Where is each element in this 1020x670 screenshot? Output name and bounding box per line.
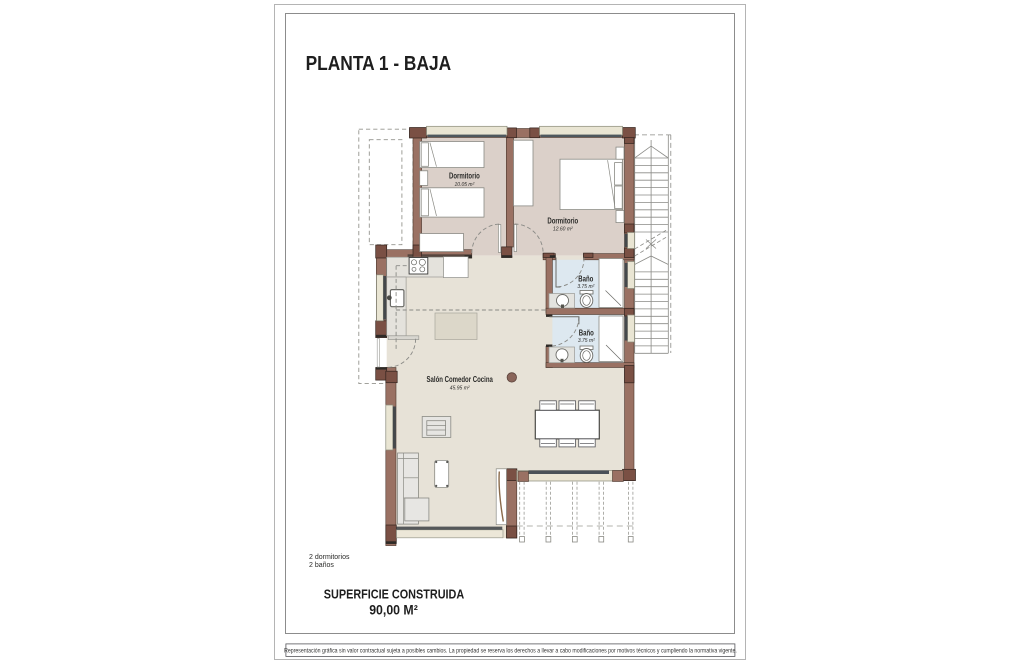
svg-text:90,00 M²: 90,00 M² <box>369 602 418 618</box>
svg-text:12.60 m²: 12.60 m² <box>553 226 573 232</box>
svg-text:SUPERFICIE CONSTRUIDA: SUPERFICIE CONSTRUIDA <box>324 588 465 602</box>
svg-text:Dormitorio: Dormitorio <box>547 215 578 225</box>
svg-text:Baño: Baño <box>578 273 594 283</box>
svg-text:2 baños: 2 baños <box>309 562 334 569</box>
svg-text:Salón Comedor Cocina: Salón Comedor Cocina <box>427 374 494 384</box>
svg-text:3.75 m²: 3.75 m² <box>577 284 594 290</box>
svg-text:Dormitorio: Dormitorio <box>449 171 480 181</box>
svg-text:Representación gráfica sin val: Representación gráfica sin valor contrac… <box>284 648 737 655</box>
svg-text:3.75 m²: 3.75 m² <box>578 337 595 343</box>
svg-text:45.95 m²: 45.95 m² <box>450 385 470 391</box>
svg-text:Baño: Baño <box>579 327 595 337</box>
svg-text:2 dormitorios: 2 dormitorios <box>309 554 350 561</box>
svg-text:PLANTA 1 - BAJA: PLANTA 1 - BAJA <box>306 52 452 74</box>
svg-text:10.05 m²: 10.05 m² <box>455 182 475 188</box>
